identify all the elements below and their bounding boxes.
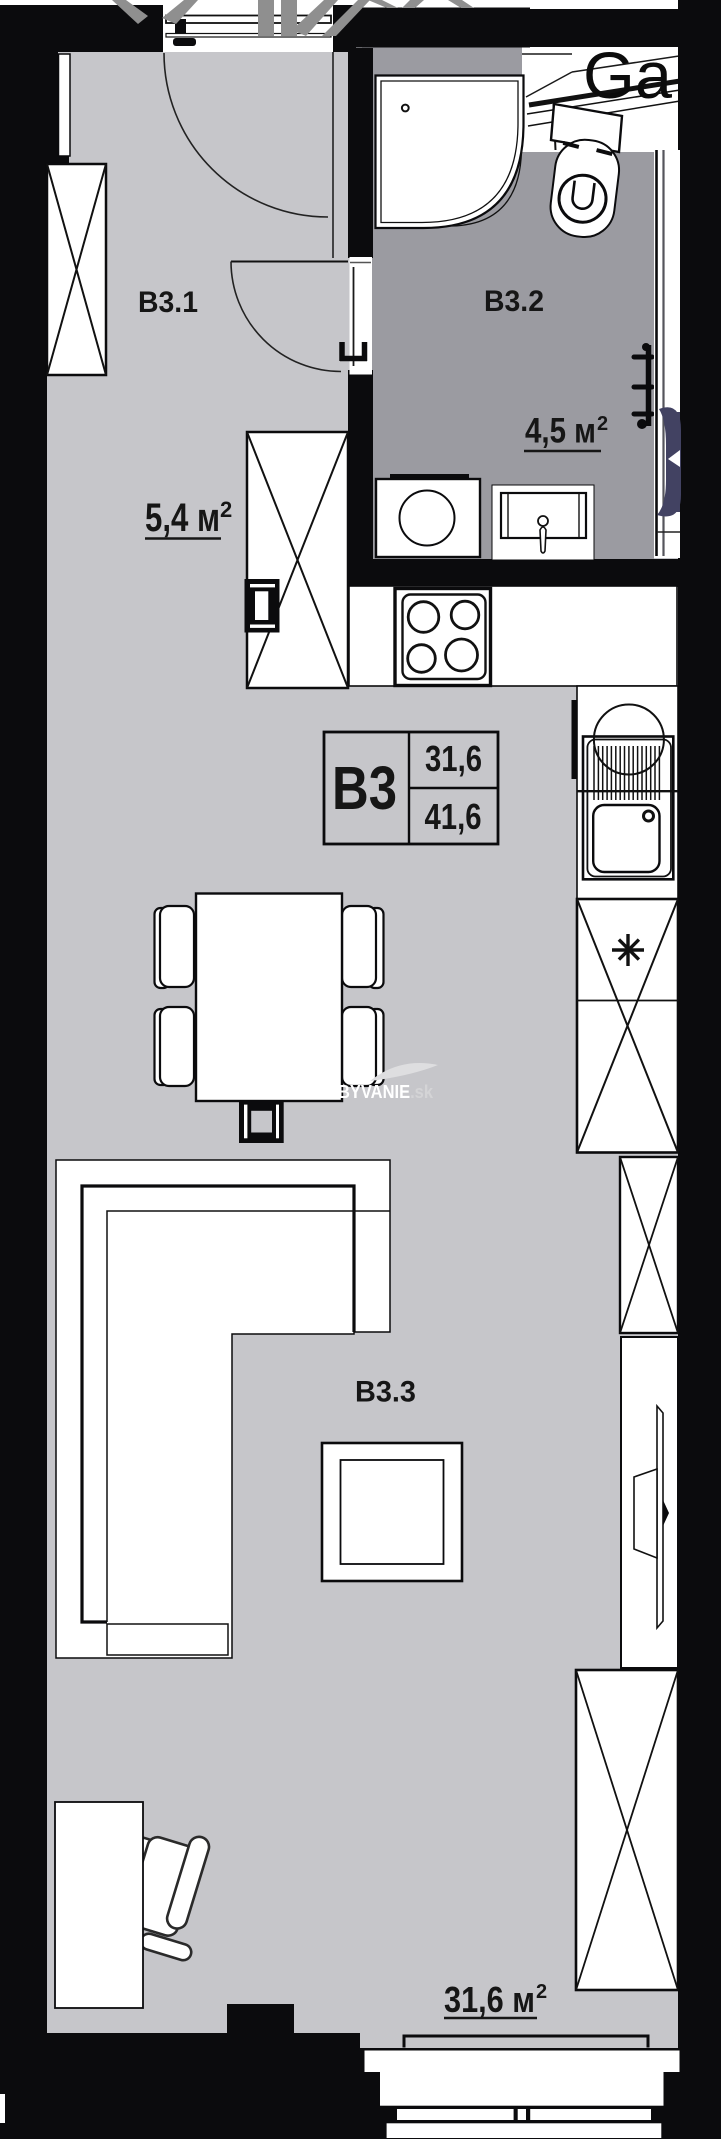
svg-text:41,6: 41,6 bbox=[425, 796, 482, 837]
svg-text:2: 2 bbox=[536, 1981, 547, 2003]
svg-text:B3: B3 bbox=[332, 754, 397, 822]
svg-text:31,6: 31,6 bbox=[425, 738, 482, 779]
svg-text:5,4 м: 5,4 м bbox=[145, 496, 220, 540]
svg-text:Ga: Ga bbox=[583, 38, 672, 112]
svg-text:2: 2 bbox=[220, 497, 232, 522]
svg-text:2: 2 bbox=[597, 413, 608, 435]
svg-text:B3.2: B3.2 bbox=[484, 285, 544, 318]
svg-text:B3.1: B3.1 bbox=[138, 286, 198, 319]
svg-text:31,6 м: 31,6 м bbox=[444, 1979, 535, 2020]
svg-text:B3.3: B3.3 bbox=[355, 1376, 416, 1409]
svg-text:BYVANIE.sk: BYVANIE.sk bbox=[338, 1082, 434, 1102]
svg-text:4,5 м: 4,5 м bbox=[525, 412, 596, 451]
